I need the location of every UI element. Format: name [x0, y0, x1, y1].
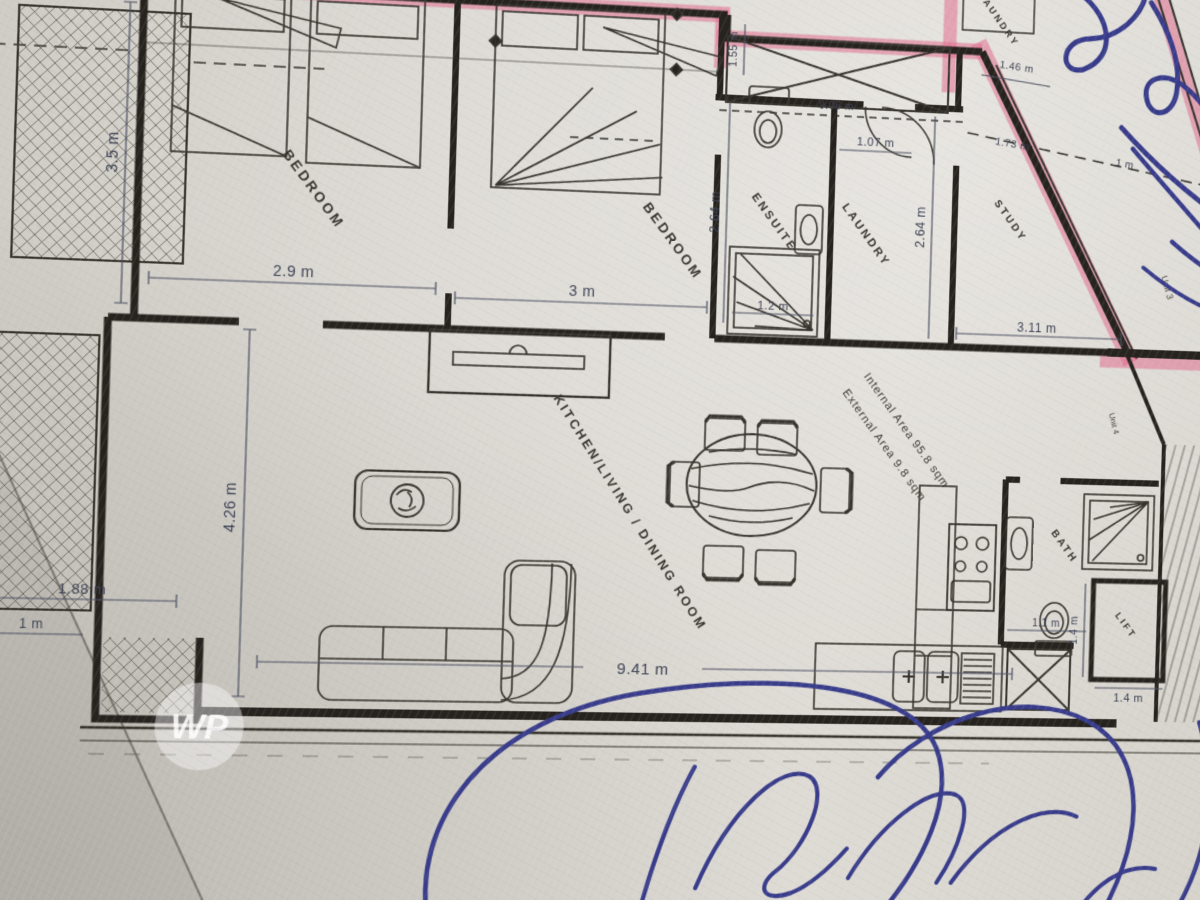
- room-label-laundry: LAUNDRY: [839, 201, 893, 270]
- walls: [79, 0, 1200, 766]
- sofa: [318, 556, 576, 703]
- bed: [491, 4, 668, 194]
- room-label-study: STUDY: [992, 198, 1029, 244]
- dim-study-width: 3.11 m: [1017, 320, 1057, 336]
- photographed-floor-plan: 3.5 m 2.9 m 3 m 2.64 m 1.07 m 1.2 m 1.55…: [0, 0, 1200, 900]
- dim-living-width: 9.41 m: [617, 660, 669, 679]
- coffee-table: [354, 470, 460, 531]
- dim-lift-width: 1.4 m: [1113, 691, 1143, 705]
- dining-table: [665, 415, 854, 586]
- dim-laundry-door: 1.07 m: [857, 135, 895, 150]
- dim-top-right-c: 1 m: [1115, 157, 1135, 172]
- room-label-bedroom1: BEDROOM: [280, 146, 349, 231]
- area-annotations: Internal Area 95.8 sqm External Area 9.8…: [837, 262, 1176, 511]
- dim-void-height: 1.55 m: [728, 31, 741, 67]
- dim-ensuite-height: 2.64 m: [707, 191, 723, 234]
- dim-lift-height: 1.4 m: [1068, 616, 1080, 645]
- column-marker-icon: [670, 64, 682, 76]
- dim-bedroom1-width: 2.9 m: [273, 263, 315, 282]
- dim-shower-width: 1.2 m: [757, 298, 789, 313]
- bath-basin: [1005, 517, 1033, 570]
- watermark-text: WP: [170, 708, 230, 747]
- dim-living-height: 4.26 m: [221, 482, 240, 532]
- room-label-bedroom2: BEDROOM: [640, 199, 706, 282]
- bed: [306, 0, 425, 168]
- room-label-lift: LIFT: [1113, 611, 1138, 641]
- dim-study-height: 2.64 m: [913, 206, 928, 248]
- dim-top-span: 9.06 m: [819, 100, 854, 113]
- dim-bedroom1-height: 3.5 m: [104, 131, 123, 173]
- ensuite-shower: [727, 247, 819, 337]
- room-label-bath: BATH: [1049, 528, 1080, 566]
- pen-signature: [424, 678, 1200, 900]
- dim-terrace-width: 1.88 m: [58, 580, 107, 597]
- room-label-ensuite: ENSUITE: [749, 190, 800, 254]
- window-casement-icon: [217, 0, 342, 48]
- floor-plan-drawing: 3.5 m 2.9 m 3 m 2.64 m 1.07 m 1.2 m 1.55…: [0, 0, 1200, 900]
- dim-bath-width: 1.1 m: [1032, 618, 1060, 630]
- unit4-label: Unit 4: [1107, 412, 1121, 436]
- bath-shower: [1082, 494, 1154, 570]
- dim-bedroom2-width: 3 m: [569, 283, 596, 301]
- kitchen-sink: [893, 651, 995, 704]
- dim-top-right-a: 1.46 m: [999, 59, 1034, 76]
- tv-unit: [428, 329, 611, 397]
- dim-terrace-depth: 1 m: [19, 616, 44, 632]
- windows-and-markers: [214, 0, 1035, 169]
